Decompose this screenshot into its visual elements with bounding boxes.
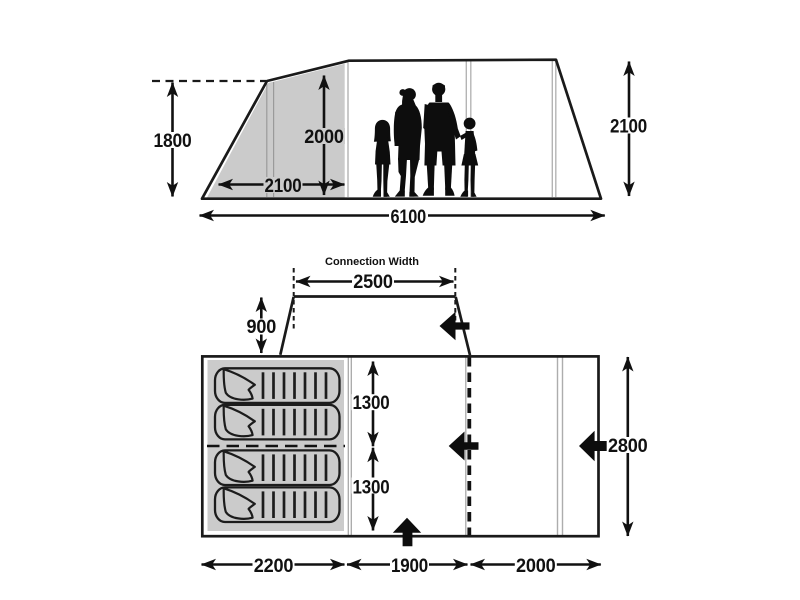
svg-text:1300: 1300 (353, 393, 390, 414)
svg-text:1900: 1900 (391, 556, 428, 577)
svg-text:2100: 2100 (265, 176, 302, 197)
svg-text:2100: 2100 (610, 117, 647, 138)
svg-text:2000: 2000 (516, 556, 556, 577)
svg-text:6100: 6100 (391, 207, 427, 228)
svg-text:2200: 2200 (254, 556, 294, 577)
svg-text:900: 900 (247, 317, 277, 338)
svg-text:Connection Width: Connection Width (325, 256, 419, 268)
svg-text:2000: 2000 (304, 127, 344, 148)
svg-text:2500: 2500 (353, 272, 393, 293)
svg-text:1800: 1800 (154, 131, 192, 152)
svg-text:2800: 2800 (608, 436, 648, 457)
svg-text:1300: 1300 (353, 478, 390, 499)
